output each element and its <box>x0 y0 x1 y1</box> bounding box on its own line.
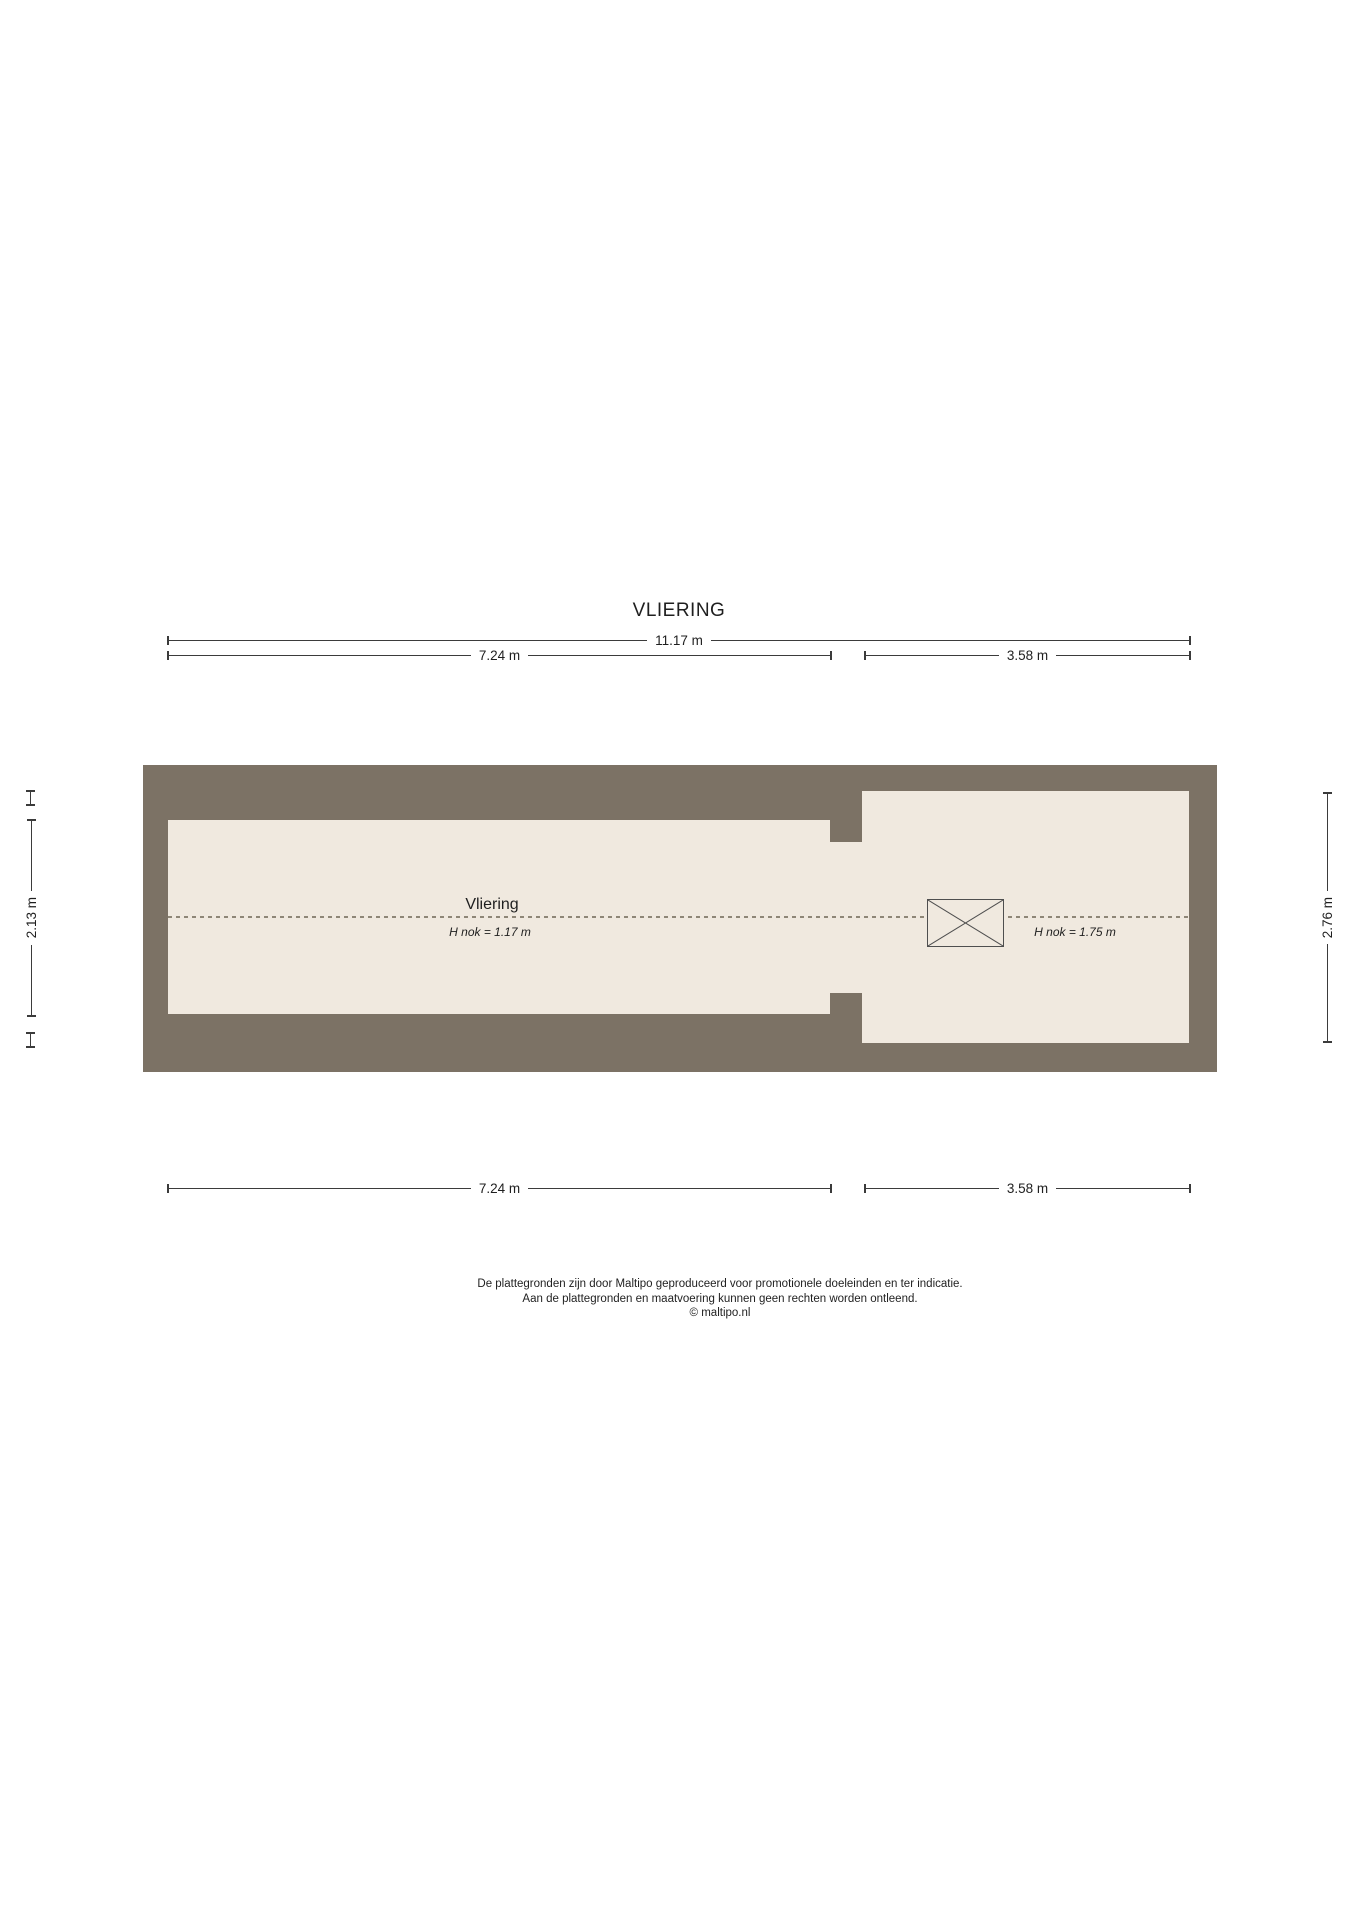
dimension-label: 3.58 m <box>1007 1181 1048 1196</box>
dimension-line <box>1327 794 1328 891</box>
dimension-top-left: 7.24 m <box>167 648 832 662</box>
dimension-top-total: 11.17 m <box>167 633 1191 647</box>
mark-cap <box>26 1046 35 1048</box>
dimension-line <box>528 655 830 656</box>
crossed-rect-icon <box>928 900 1003 946</box>
dimension-label: 7.24 m <box>479 1181 520 1196</box>
dimension-line <box>31 821 32 891</box>
dimension-bottom-left: 7.24 m <box>167 1181 832 1195</box>
dimension-line <box>169 655 471 656</box>
wall-extent-mark-top <box>26 790 35 806</box>
dimension-line <box>711 640 1189 641</box>
wall-extent-mark-bottom <box>26 1032 35 1048</box>
dimension-line <box>1056 1188 1189 1189</box>
dimension-label: 11.17 m <box>655 633 703 648</box>
dimension-tick <box>1189 1184 1191 1193</box>
ridge-height-label-right: H nok = 1.75 m <box>1034 925 1116 939</box>
mark-cap <box>26 804 35 806</box>
dimension-label: 2.13 m <box>24 897 39 938</box>
dimension-side-left: 2.13 m <box>21 819 41 1017</box>
dimension-tick <box>27 1015 36 1017</box>
dimension-line <box>169 640 647 641</box>
mark-stem <box>30 791 32 805</box>
dimension-label: 7.24 m <box>479 648 520 663</box>
footer-disclaimer: De plattegronden zijn door Maltipo gepro… <box>477 1277 962 1321</box>
roof-window-icon <box>927 899 1004 947</box>
dimension-tick <box>1189 651 1191 660</box>
dimension-line <box>866 1188 999 1189</box>
mark-stem <box>30 1033 32 1047</box>
dimension-label: 2.76 m <box>1320 897 1335 938</box>
ridge-dotted-line <box>168 916 1189 918</box>
dimension-tick <box>830 651 832 660</box>
dimension-side-right: 2.76 m <box>1317 792 1337 1043</box>
dimension-top-right: 3.58 m <box>864 648 1191 662</box>
page-title: VLIERING <box>633 600 726 622</box>
floorplan-walls: Vliering H nok = 1.17 m H nok = 1.75 m <box>143 765 1217 1072</box>
ridge-height-label-left: H nok = 1.17 m <box>449 925 531 939</box>
footer-line-3: © maltipo.nl <box>477 1306 962 1321</box>
dimension-line <box>528 1188 830 1189</box>
dimension-tick <box>1323 1041 1332 1043</box>
dimension-tick <box>1189 636 1191 645</box>
dimension-bottom-right: 3.58 m <box>864 1181 1191 1195</box>
dimension-line <box>1056 655 1189 656</box>
dimension-label: 3.58 m <box>1007 648 1048 663</box>
room-name-label: Vliering <box>465 896 518 914</box>
dimension-line <box>169 1188 471 1189</box>
floorplan-page: VLIERING 11.17 m 7.24 m 3.58 m <box>0 0 1358 1920</box>
footer-line-1: De plattegronden zijn door Maltipo gepro… <box>477 1277 962 1292</box>
dimension-tick <box>830 1184 832 1193</box>
footer-line-2: Aan de plattegronden en maatvoering kunn… <box>477 1292 962 1307</box>
dimension-line <box>1327 944 1328 1041</box>
dimension-line <box>866 655 999 656</box>
dimension-line <box>31 945 32 1015</box>
